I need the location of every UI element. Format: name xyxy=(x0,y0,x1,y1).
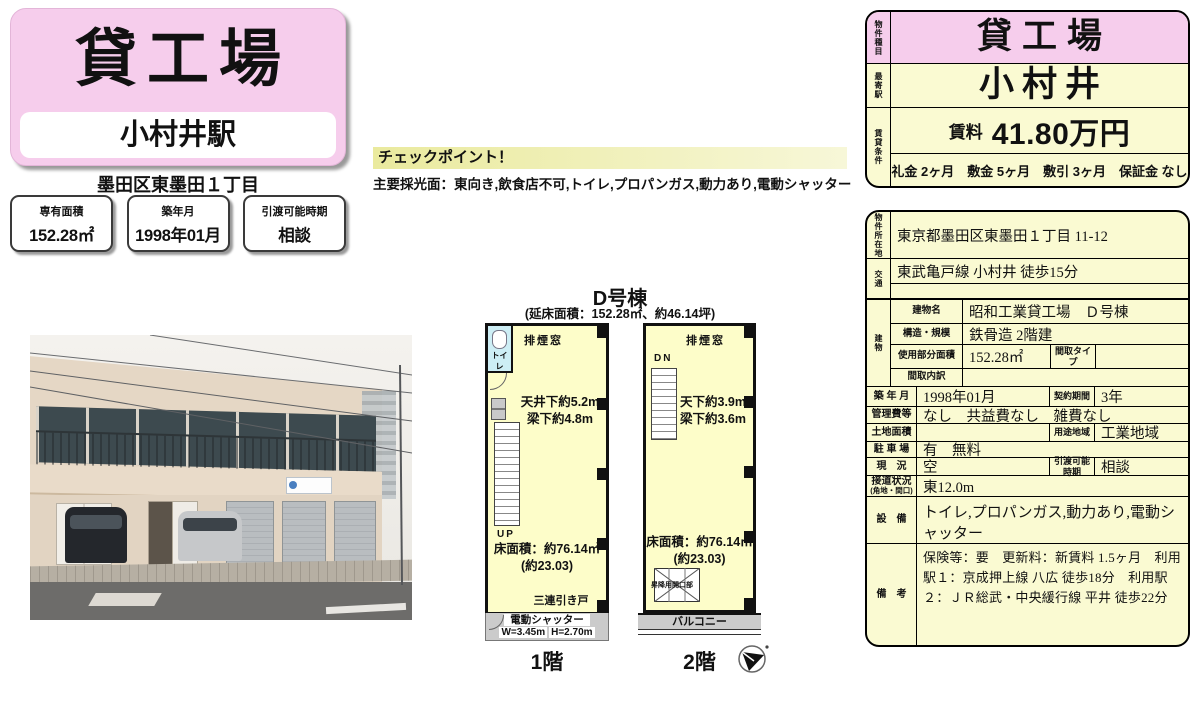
ceiling-line: 天下約3.9m xyxy=(672,394,754,411)
row-management-fee: 管理費等 なし 共益費なし 雑費なし xyxy=(867,406,1188,423)
row-remarks: 備 考 保険等：要 更新料：新賃料 1.5ヶ月 利用駅１：京成押上線 八広 徒歩… xyxy=(867,543,1188,645)
built-value: 1998年01月 xyxy=(917,387,1049,406)
access-header: 交通 xyxy=(867,259,891,298)
equipment-value: トイレ,プロパンガス,動力あり,電動シャッター xyxy=(917,497,1188,543)
building-header: 建物 xyxy=(867,300,891,386)
rent-row: 賃料 41.80万円 xyxy=(891,108,1188,154)
row-nearest-station: 最寄駅 小村井 xyxy=(867,64,1188,108)
row-used-area: 使用部分面積 152.28㎡ 間取タイプ xyxy=(891,344,1188,368)
status-header: 現 況 xyxy=(867,458,917,475)
road-header: 接道状況 (角地・間口) xyxy=(867,476,917,496)
madori-breakdown-value xyxy=(963,369,1188,386)
row-building-name: 建物名 昭和工業貸工場 Ｄ号棟 xyxy=(891,300,1188,323)
checkpoint-title-bar: チェックポイント！ xyxy=(373,147,847,169)
property-type-value: 貸工場 xyxy=(891,12,1188,63)
pillar xyxy=(744,326,753,338)
station-box: 小村井駅 xyxy=(20,112,336,158)
location-header: 物件所在地 xyxy=(867,212,891,258)
access-line1: 東武亀戸線 小村井 徒歩15分 xyxy=(891,259,1188,284)
lease-terms-header: 賃貸条件 xyxy=(867,108,891,186)
building-name-header: 建物名 xyxy=(891,300,963,323)
nearest-station-value: 小村井 xyxy=(891,64,1188,107)
stat-value: 相談 xyxy=(245,222,344,246)
building-name-value: 昭和工業貸工場 Ｄ号棟 xyxy=(963,300,1188,323)
status-value: 空 xyxy=(917,458,1049,475)
photo-power-lines xyxy=(30,335,412,620)
pillar xyxy=(744,396,753,408)
used-area-header: 使用部分面積 xyxy=(891,345,963,368)
parking-header: 駐 車 場 xyxy=(867,442,917,457)
contract-header: 契約期間 xyxy=(1049,387,1095,406)
hoist-opening-label: 昇降用開口部 xyxy=(651,580,693,590)
built-header: 築 年 月 xyxy=(867,387,917,406)
equipment-box xyxy=(491,398,506,420)
toilet-icon xyxy=(492,330,507,349)
handover-value: 相談 xyxy=(1095,458,1188,475)
electric-shutter-zone: 電動シャッター W=3.45m H=2.70m xyxy=(485,613,609,641)
remarks-value: 保険等：要 更新料：新賃料 1.5ヶ月 利用駅１：京成押上線 八広 徒歩18分 … xyxy=(917,544,1188,645)
row-equipment: 設 備 トイレ,プロパンガス,動力あり,電動シャッター xyxy=(867,496,1188,543)
floorplan-1f: トイレ 排煙窓 UP 天井下約5.2m 梁下約4.8m 床面積：約76.14㎡ … xyxy=(485,323,609,615)
road-header-sub: (角地・間口) xyxy=(870,487,913,496)
flyer-page: { "colors": { "pink": "#f6cdec", "cream_… xyxy=(0,0,1198,703)
floor-area-tsubo-2f: (約23.03) xyxy=(646,548,753,567)
floor-area-tsubo-1f: (約23.03) xyxy=(490,555,604,574)
pillar xyxy=(744,466,753,478)
smoke-window-label-2f: 排煙窓 xyxy=(686,332,725,348)
toilet-label: トイレ xyxy=(488,350,511,372)
management-fee-value: なし 共益費なし 雑費なし xyxy=(917,407,1188,423)
access-body: 東武亀戸線 小村井 徒歩15分 xyxy=(891,259,1188,298)
stat-box-built: 築年月 1998年01月 xyxy=(127,195,230,252)
building-body: 建物名 昭和工業貸工場 Ｄ号棟 構造・規模 鉄骨造 2階建 使用部分面積 152… xyxy=(891,300,1188,386)
address-line: 墨田区東墨田１丁目 xyxy=(10,171,346,197)
row-parking: 駐 車 場 有 無料 xyxy=(867,441,1188,457)
land-area-header: 土地面積 xyxy=(867,424,917,441)
contract-value: 3年 xyxy=(1095,387,1188,406)
stat-label: 専有面積 xyxy=(12,203,111,219)
pillar xyxy=(744,598,753,610)
checkpoint-title: チェックポイント！ xyxy=(378,149,513,166)
station-name: 小村井駅 xyxy=(120,119,236,151)
stat-value: 1998年01月 xyxy=(129,222,228,246)
deposit-terms: 礼金 2ヶ月 敷金 5ヶ月 敷引 3ヶ月 保証金 なし xyxy=(891,154,1188,186)
pillar xyxy=(597,326,606,338)
pillar xyxy=(597,538,606,550)
handover-header: 引渡可能時期 xyxy=(1049,458,1095,475)
madori-breakdown-header: 間取内訳 xyxy=(891,369,963,386)
ceiling-height-2f: 天下約3.9m 梁下約3.6m xyxy=(672,394,754,428)
row-road: 接道状況 (角地・間口) 東12.0m xyxy=(867,475,1188,496)
zoning-header: 用途地域 xyxy=(1049,424,1095,441)
used-area-value: 152.28㎡ xyxy=(963,345,1050,368)
rent-value: 41.80万円 xyxy=(992,109,1131,153)
balcony-underline xyxy=(638,634,761,635)
property-type-title: 貸工場 xyxy=(11,9,345,111)
stat-label: 引渡可能時期 xyxy=(245,203,344,219)
balcony-label: バルコニー xyxy=(638,613,761,630)
remarks-header: 備 考 xyxy=(867,544,917,645)
shutter-label: 電動シャッター xyxy=(504,614,590,626)
stat-label: 築年月 xyxy=(129,203,228,219)
summary-table: 物件種目 貸工場 最寄駅 小村井 賃貸条件 賃料 41.80万円 礼金 2ヶ月 … xyxy=(865,10,1190,188)
building-photo xyxy=(30,335,412,620)
row-property-type: 物件種目 貸工場 xyxy=(867,12,1188,64)
ceiling-line: 天井下約5.2m xyxy=(514,394,606,411)
property-type-header: 物件種目 xyxy=(867,12,891,63)
road-value: 東12.0m xyxy=(917,476,1188,496)
toilet-room: トイレ xyxy=(488,326,513,373)
pillar xyxy=(744,531,753,543)
north-arrow-icon xyxy=(735,640,773,678)
nearest-station-header: 最寄駅 xyxy=(867,64,891,107)
management-fee-header: 管理費等 xyxy=(867,407,917,423)
detail-table: 物件所在地 東京都墨田区東墨田１丁目 11-12 交通 東武亀戸線 小村井 徒歩… xyxy=(865,210,1190,647)
pillar xyxy=(597,600,606,612)
floorplan-subtitle: (延床面積：152.28㎡、約46.14坪) xyxy=(450,303,790,322)
pillar xyxy=(597,398,606,410)
structure-value: 鉄骨造 2階建 xyxy=(963,324,1188,344)
beam-line: 梁下約3.6m xyxy=(672,411,754,428)
madori-type-value xyxy=(1096,345,1188,368)
floor1-caption: 1階 xyxy=(485,646,609,676)
ceiling-height-1f: 天井下約5.2m 梁下約4.8m xyxy=(514,394,606,428)
madori-type-header: 間取タイプ xyxy=(1050,345,1096,368)
row-built: 築 年 月 1998年01月 契約期間 3年 xyxy=(867,386,1188,406)
lease-terms-body: 賃料 41.80万円 礼金 2ヶ月 敷金 5ヶ月 敷引 3ヶ月 保証金 なし xyxy=(891,108,1188,186)
shutter-height: H=2.70m xyxy=(549,627,594,638)
floorplan-2f: 排煙窓 DN 天下約3.9m 梁下約3.6m 床面積：約76.14㎡ (約23.… xyxy=(643,323,756,613)
pillar xyxy=(597,468,606,480)
door-arc-icon xyxy=(490,373,507,390)
row-location: 物件所在地 東京都墨田区東墨田１丁目 11-12 xyxy=(867,212,1188,258)
location-value: 東京都墨田区東墨田１丁目 11-12 xyxy=(891,212,1188,258)
equipment-header: 設 備 xyxy=(867,497,917,543)
access-line2 xyxy=(891,284,1188,298)
stairs-down-label: DN xyxy=(654,353,672,364)
property-type-card: 貸工場 小村井駅 xyxy=(10,8,346,166)
sliding-door-label: 三連引き戸 xyxy=(516,592,606,608)
shutter-dimensions: W=3.45m H=2.70m xyxy=(486,627,608,638)
checkpoint-body: 主要採光面：東向き,飲食店不可,トイレ,プロパンガス,動力あり,電動シャッター xyxy=(373,175,853,195)
smoke-window-label-1f: 排煙窓 xyxy=(524,332,563,348)
row-lease-terms: 賃貸条件 賃料 41.80万円 礼金 2ヶ月 敷金 5ヶ月 敷引 3ヶ月 保証金… xyxy=(867,108,1188,186)
row-structure: 構造・規模 鉄骨造 2階建 xyxy=(891,323,1188,344)
row-building: 建物 建物名 昭和工業貸工場 Ｄ号棟 構造・規模 鉄骨造 2階建 使用部分面積 … xyxy=(867,298,1188,386)
stat-value: 152.28㎡ xyxy=(12,222,111,246)
shutter-width: W=3.45m xyxy=(499,627,547,638)
stat-boxes: 専有面積 152.28㎡ 築年月 1998年01月 引渡可能時期 相談 xyxy=(10,195,346,252)
stat-box-area: 専有面積 152.28㎡ xyxy=(10,195,113,252)
structure-header: 構造・規模 xyxy=(891,324,963,344)
beam-line: 梁下約4.8m xyxy=(514,411,606,428)
rent-label: 賃料 xyxy=(949,118,983,143)
zoning-value: 工業地域 xyxy=(1095,424,1188,441)
row-land-area: 土地面積 用途地域 工業地域 xyxy=(867,423,1188,441)
row-status: 現 況 空 引渡可能時期 相談 xyxy=(867,457,1188,475)
row-access: 交通 東武亀戸線 小村井 徒歩15分 xyxy=(867,258,1188,298)
stat-box-handover: 引渡可能時期 相談 xyxy=(243,195,346,252)
row-madori-breakdown: 間取内訳 xyxy=(891,368,1188,386)
stairs-up-icon xyxy=(494,422,520,526)
